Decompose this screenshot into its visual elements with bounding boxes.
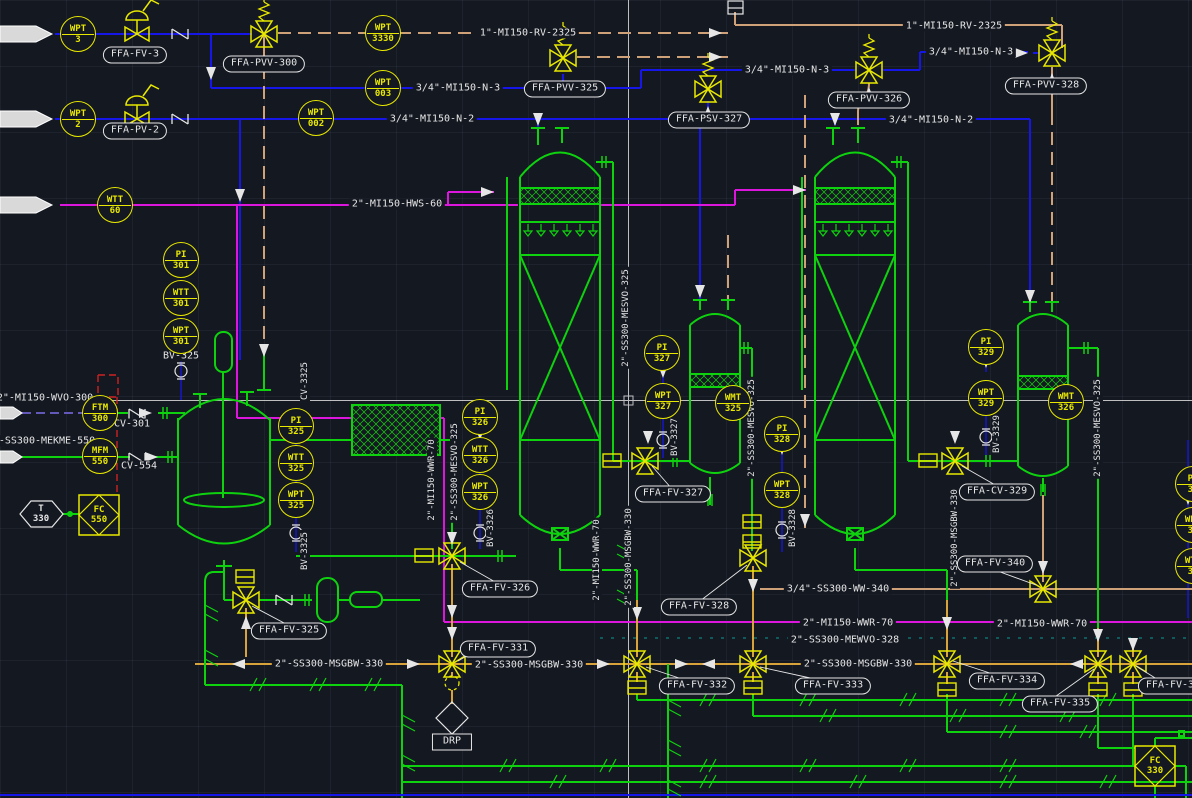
line-label: 2"-MI150-WWR-70 — [800, 618, 896, 629]
vertical-line-label: CV-3325 — [300, 360, 310, 402]
cad-drawing-canvas[interactable]: WPT3WPT2WPT3330WPT003WPT002WTT60PI301WTT… — [0, 0, 1192, 798]
instrument-bubble-wpt-328: WPT328 — [764, 472, 800, 508]
instrument-bubble-wpt-003: WPT003 — [365, 70, 401, 106]
instrument-bubble-wmt-326: WMT326 — [1048, 384, 1084, 420]
instrument-bubble-wpt-2: WPT2 — [60, 101, 96, 137]
line-label: CV-554 — [118, 461, 160, 472]
instrument-bubble-wpt-002: WPT002 — [298, 100, 334, 136]
vertical-line-label: 2"-SS300-MESVO-325 — [1093, 377, 1103, 479]
vertical-line-label: 2"-SS300-MSGBW-330 — [624, 506, 634, 608]
line-label: 2"-MI150-WVO-300 — [0, 393, 96, 404]
instrument-bubble-pi-326: PI326 — [462, 399, 498, 435]
instrument-bubble-pi-327: PI327 — [644, 335, 680, 371]
instrument-bubble-ftm-300: FTM300 — [82, 395, 118, 431]
instrument-bubble-pi-325: PI325 — [278, 408, 314, 444]
line-label: CV-301 — [111, 419, 153, 430]
instrument-bubble-pi-301: PI301 — [163, 242, 199, 278]
instrument-bubble-pi-329: PI329 — [968, 329, 1004, 365]
instrument-bubble-wtt-33: WTT33 — [1175, 548, 1192, 584]
valve-tag-ffa-fv-333: FFA-FV-333 — [795, 678, 871, 695]
valve-tag-ffa-pvv-325: FFA-PVV-325 — [524, 81, 606, 98]
valve-tag-ffa-fv-334: FFA-FV-334 — [969, 673, 1045, 690]
instrument-bubble-wtt-60: WTT60 — [97, 187, 133, 223]
line-label: 3/4"-MI150-N-3 — [926, 47, 1016, 58]
valve-tag-ffa-fv-340: FFA-FV-340 — [957, 556, 1033, 573]
instrument-bubble-wpt-326: WPT326 — [462, 474, 498, 510]
label-overlay: WPT3WPT2WPT3330WPT003WPT002WTT60PI301WTT… — [0, 0, 1192, 798]
vertical-line-label: BV-3329 — [992, 413, 1002, 455]
special-label-drp: DRP — [432, 734, 472, 751]
valve-tag-ffa-pv-2: FFA-PV-2 — [103, 123, 167, 140]
instrument-bubble-wpt-327: WPT327 — [645, 383, 681, 419]
line-label: 3/4"-MI150-N-2 — [387, 114, 477, 125]
instrument-bubble-wtt-325: WTT325 — [278, 445, 314, 481]
special-label-fc-550: FC550 — [91, 505, 107, 525]
instrument-bubble-wpt-301: WPT301 — [163, 318, 199, 354]
line-label: 2"-MI150-HWS-60 — [349, 199, 445, 210]
instrument-bubble-pi-33: PI33 — [1175, 466, 1192, 502]
instrument-bubble-wpt-325: WPT325 — [278, 482, 314, 518]
valve-tag-ffa-fv-327: FFA-FV-327 — [635, 486, 711, 503]
valve-tag-ffa-fv-335: FFA-FV-335 — [1022, 696, 1098, 713]
valve-tag-ffa-pvv-300: FFA-PVV-300 — [223, 56, 305, 73]
valve-tag-ffa-fv-3: FFA-FV-3 — [1138, 678, 1192, 695]
instrument-bubble-wpt-3: WPT3 — [60, 16, 96, 52]
vertical-line-label: BV-3325 — [300, 530, 310, 572]
vertical-line-label: 2"-SS300-MSGBW-330 — [950, 487, 960, 589]
line-label: 3/4"-SS300-WW-340 — [784, 584, 892, 595]
line-label: 3/4"-MI150-N-3 — [742, 65, 832, 76]
line-label: 3/4"-MI150-N-2 — [886, 115, 976, 126]
vertical-line-label: 2"-SS300-MESVO-325 — [621, 267, 631, 369]
valve-tag-ffa-cv-329: FFA-CV-329 — [959, 484, 1035, 501]
instrument-bubble-wpt-33: WPT33 — [1175, 507, 1192, 543]
line-label: 1"-MI150-RV-2325 — [477, 28, 579, 39]
vertical-line-label: BV-3327 — [670, 416, 680, 458]
line-label: 2"-SS300-MSGBW-330 — [272, 659, 386, 670]
instrument-bubble-wpt-329: WPT329 — [968, 380, 1004, 416]
vertical-line-label: 2"-MI150-WWR-70 — [592, 517, 602, 602]
line-label: 2"-SS300-MEWVO-328 — [788, 635, 902, 646]
valve-tag-ffa-pvv-328: FFA-PVV-328 — [1005, 78, 1087, 95]
line-label: 2"-SS300-MSGBW-330 — [472, 660, 586, 671]
instrument-bubble-mfm-550: MFM550 — [82, 438, 118, 474]
instrument-bubble-wmt-325: WMT325 — [715, 385, 751, 421]
valve-tag-ffa-fv-331: FFA-FV-331 — [460, 641, 536, 658]
line-label: 1"-MI150-RV-2325 — [903, 21, 1005, 32]
instrument-bubble-pi-328: PI328 — [764, 416, 800, 452]
valve-tag-ffa-fv-326: FFA-FV-326 — [462, 581, 538, 598]
special-label-fc-330: FC330 — [1147, 756, 1163, 776]
line-label: 2"-MI150-WWR-70 — [994, 619, 1090, 630]
instrument-bubble-wtt-301: WTT301 — [163, 280, 199, 316]
valve-tag-ffa-fv-3: FFA-FV-3 — [103, 47, 167, 64]
vertical-line-label: BV-3328 — [788, 507, 798, 549]
line-label: 3/4"-MI150-N-3 — [413, 83, 503, 94]
valve-tag-ffa-fv-328: FFA-FV-328 — [661, 599, 737, 616]
vertical-line-label: 2"-MI150-WWR-70 — [427, 437, 437, 522]
valve-tag-ffa-pvv-326: FFA-PVV-326 — [828, 92, 910, 109]
instrument-bubble-wpt-3330: WPT3330 — [365, 15, 401, 51]
line-label: 2"-SS300-MSGBW-330 — [801, 659, 915, 670]
vertical-line-label: 2"-SS300-MESVO-325 — [450, 421, 460, 523]
valve-tag-ffa-psv-327: FFA-PSV-327 — [668, 112, 750, 129]
instrument-bubble-wtt-326: WTT326 — [462, 437, 498, 473]
valve-tag-ffa-fv-325: FFA-FV-325 — [251, 623, 327, 640]
special-label-t-330: T330 — [33, 504, 49, 524]
vertical-line-label: BV-3326 — [486, 507, 496, 549]
valve-tag-ffa-fv-332: FFA-FV-332 — [659, 678, 735, 695]
